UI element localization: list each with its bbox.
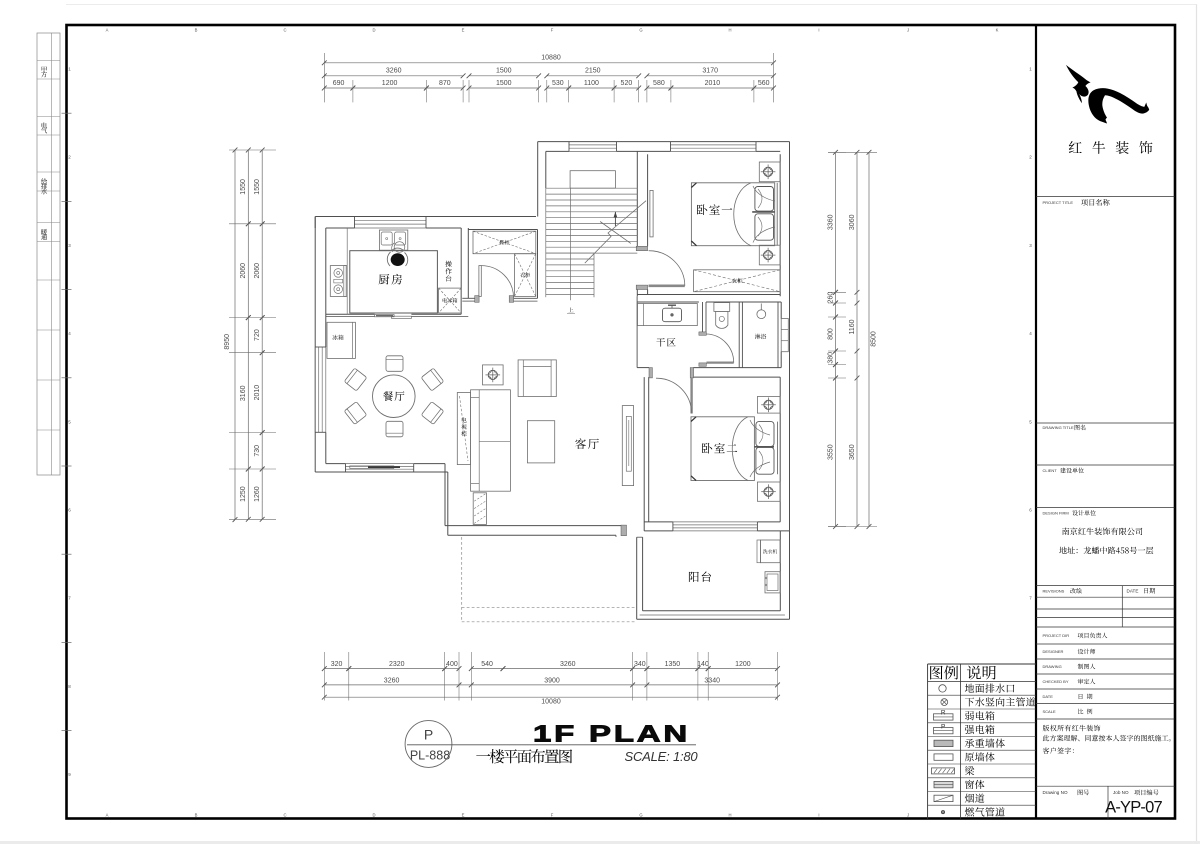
- svg-text:CLIENT: CLIENT: [1043, 468, 1058, 473]
- svg-text:DATE: DATE: [1127, 588, 1139, 593]
- svg-text:8950: 8950: [224, 334, 231, 350]
- svg-text:J: J: [907, 813, 909, 818]
- svg-text:520: 520: [621, 80, 633, 87]
- svg-text:SCALE: 1:80: SCALE: 1:80: [625, 749, 699, 764]
- svg-text:3360: 3360: [827, 214, 834, 230]
- svg-text:260: 260: [827, 292, 834, 304]
- svg-text:1200: 1200: [735, 661, 751, 668]
- svg-text:C: C: [283, 813, 286, 818]
- svg-text:4: 4: [1029, 331, 1032, 336]
- svg-text:1500: 1500: [496, 80, 512, 87]
- svg-text:580: 580: [653, 80, 665, 87]
- svg-text:1: 1: [68, 67, 71, 72]
- svg-text:3900: 3900: [544, 677, 560, 684]
- svg-text:3260: 3260: [386, 68, 402, 75]
- svg-text:7: 7: [68, 596, 71, 601]
- svg-text:730: 730: [254, 445, 261, 457]
- svg-text:A: A: [106, 28, 109, 33]
- svg-text:3260: 3260: [560, 661, 576, 668]
- svg-text:Drawing NO: Drawing NO: [1043, 790, 1068, 795]
- svg-text:10080: 10080: [541, 699, 561, 706]
- svg-text:10880: 10880: [541, 55, 561, 62]
- svg-text:B: B: [195, 28, 198, 33]
- svg-text:DESIGN FIRM: DESIGN FIRM: [1043, 511, 1069, 516]
- svg-text:5: 5: [68, 419, 71, 424]
- svg-text:800: 800: [827, 328, 834, 340]
- svg-text:3650: 3650: [849, 444, 856, 460]
- svg-text:6: 6: [1029, 508, 1032, 513]
- svg-text:I: I: [818, 28, 819, 33]
- svg-text:540: 540: [481, 661, 493, 668]
- svg-text:K: K: [996, 28, 999, 33]
- svg-text:E: E: [462, 813, 465, 818]
- svg-text:G: G: [639, 28, 642, 33]
- svg-text:2150: 2150: [585, 68, 601, 75]
- svg-text:2060: 2060: [254, 263, 261, 279]
- svg-text:400: 400: [446, 661, 458, 668]
- svg-text:530: 530: [552, 80, 564, 87]
- svg-text:A-YP-07: A-YP-07: [1105, 799, 1162, 817]
- svg-text:1F PLAN: 1F PLAN: [533, 720, 690, 746]
- svg-text:DRAWING: DRAWING: [1043, 664, 1062, 669]
- svg-text:R: R: [941, 710, 946, 717]
- svg-text:G: G: [639, 813, 642, 818]
- svg-text:5: 5: [1029, 419, 1032, 424]
- svg-text:380: 380: [827, 352, 834, 364]
- svg-text:PL-888: PL-888: [410, 749, 450, 763]
- svg-text:6: 6: [68, 508, 71, 513]
- svg-text:SCALE: SCALE: [1043, 709, 1056, 714]
- svg-text:4: 4: [68, 331, 71, 336]
- svg-text:2: 2: [68, 155, 71, 160]
- svg-text:1250: 1250: [240, 486, 247, 502]
- svg-text:320: 320: [331, 661, 343, 668]
- svg-text:D: D: [372, 813, 375, 818]
- svg-text:DATE: DATE: [1043, 694, 1054, 699]
- svg-text:3170: 3170: [702, 68, 718, 75]
- svg-text:690: 690: [333, 80, 345, 87]
- svg-text:3340: 3340: [704, 677, 720, 684]
- svg-text:1200: 1200: [382, 80, 398, 87]
- svg-text:DESIGNER: DESIGNER: [1043, 649, 1064, 654]
- svg-text:8: 8: [68, 684, 71, 689]
- svg-text:8500: 8500: [871, 331, 878, 347]
- svg-text:H: H: [728, 28, 731, 33]
- svg-text:3160: 3160: [240, 385, 247, 401]
- svg-text:1100: 1100: [584, 80, 599, 87]
- svg-text:1500: 1500: [496, 68, 512, 75]
- svg-text:9: 9: [68, 772, 71, 777]
- svg-text:D: D: [372, 28, 375, 33]
- svg-text:B: B: [195, 813, 198, 818]
- svg-text:J: J: [907, 28, 909, 33]
- svg-text:3550: 3550: [827, 444, 834, 460]
- svg-text:2010: 2010: [705, 80, 721, 87]
- svg-text:3060: 3060: [849, 214, 856, 230]
- svg-text:7: 7: [1029, 596, 1032, 601]
- svg-text:1160: 1160: [849, 319, 856, 334]
- svg-text:A: A: [106, 813, 109, 818]
- svg-text:DRAWING TITLE: DRAWING TITLE: [1043, 425, 1074, 430]
- svg-text:F: F: [551, 813, 554, 818]
- svg-text:560: 560: [758, 80, 770, 87]
- svg-text:F: F: [551, 28, 554, 33]
- svg-text:3: 3: [68, 243, 71, 248]
- svg-text:PROJECT TITLE: PROJECT TITLE: [1043, 200, 1074, 205]
- svg-text:H: H: [728, 813, 731, 818]
- svg-text:1350: 1350: [665, 661, 681, 668]
- svg-text:2320: 2320: [389, 661, 405, 668]
- svg-text:REVISIONS: REVISIONS: [1043, 588, 1065, 593]
- svg-text:140: 140: [697, 661, 709, 668]
- svg-text:2060: 2060: [240, 263, 247, 279]
- svg-text:P: P: [941, 723, 945, 730]
- svg-text:Job NO: Job NO: [1113, 790, 1129, 795]
- svg-text:E: E: [462, 28, 465, 33]
- svg-text:I: I: [818, 813, 819, 818]
- svg-text:2: 2: [1029, 155, 1032, 160]
- svg-text:870: 870: [439, 80, 451, 87]
- svg-text:P: P: [424, 727, 433, 743]
- svg-text:340: 340: [634, 661, 646, 668]
- svg-text:1550: 1550: [240, 179, 247, 195]
- svg-text:3: 3: [1029, 243, 1032, 248]
- svg-text:PROJECT DIR: PROJECT DIR: [1043, 633, 1070, 638]
- svg-text:720: 720: [254, 329, 261, 341]
- svg-text:2010: 2010: [254, 385, 261, 401]
- svg-text:3260: 3260: [384, 677, 400, 684]
- svg-text:C: C: [283, 28, 286, 33]
- svg-text:1260: 1260: [254, 486, 261, 502]
- svg-text:1550: 1550: [254, 179, 261, 195]
- svg-text:1: 1: [1029, 67, 1032, 72]
- svg-text:CHECKED BY: CHECKED BY: [1043, 679, 1069, 684]
